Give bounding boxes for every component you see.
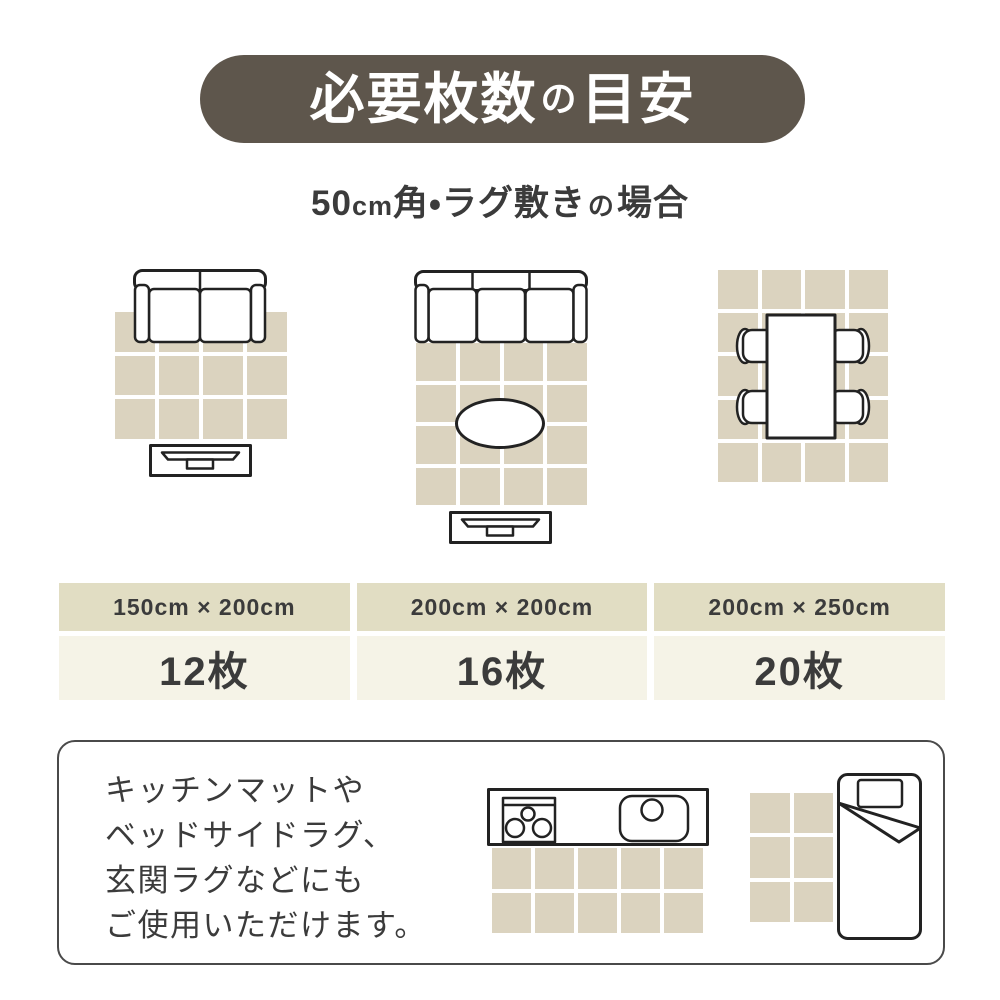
rug-tile (115, 399, 155, 439)
subtitle-particle: の (586, 191, 617, 221)
note-line: ベッドサイドラグ、 (105, 813, 427, 858)
subtitle-unit: cm (352, 191, 393, 221)
subtitle-kanji: 角・ラグ敷き (393, 184, 586, 223)
rug-tile (416, 426, 456, 464)
title-text-main: 必要枚数 (309, 72, 537, 127)
rug-tile (547, 426, 587, 464)
rug-tile (621, 848, 660, 889)
rug-tile (247, 356, 287, 396)
title-banner: 必要枚数の目安 (200, 55, 805, 143)
bedside-rug-grid (750, 793, 833, 922)
rug-tile (203, 399, 243, 439)
rug-tile (547, 343, 587, 381)
rug-tile (578, 893, 617, 934)
rug-tile (416, 468, 456, 506)
rug-tile (718, 270, 758, 309)
tv-board-icon (449, 511, 552, 544)
title-text-particle: の (537, 81, 581, 117)
rug-tile (805, 270, 845, 309)
rug-tile (664, 893, 703, 934)
rug-tile (203, 356, 243, 396)
rug-tile (750, 837, 790, 877)
tile-count-cell: 12枚 (59, 636, 350, 700)
note-line: 玄関ラグなどにも (105, 858, 427, 903)
rug-tile (492, 893, 531, 934)
rug-tile (547, 468, 587, 506)
rug-tile (794, 837, 834, 877)
oval-low-table-icon (455, 398, 545, 449)
rug-tile (621, 893, 660, 934)
rug-tile (794, 793, 834, 833)
tv-board-icon (149, 444, 252, 477)
rug-tile (750, 793, 790, 833)
rug-tile (115, 356, 155, 396)
rug-tile (535, 848, 574, 889)
size-count-table: 150cm × 200cm 200cm × 200cm 200cm × 250c… (59, 583, 945, 700)
title-text-tail: 目安 (582, 72, 696, 127)
note-line: ご使用いただけます。 (105, 903, 427, 948)
rug-tile (460, 468, 500, 506)
rug-tile (547, 385, 587, 423)
rug-tile (159, 356, 199, 396)
bed-icon (837, 773, 922, 940)
sofa-2seat-icon (133, 269, 267, 344)
size-header-cell: 200cm × 200cm (357, 583, 648, 631)
dining-table-chairs-icon (730, 310, 876, 445)
rug-tile (460, 343, 500, 381)
rug-tile (805, 443, 845, 482)
rug-tile (504, 468, 544, 506)
rug-tile (535, 893, 574, 934)
rug-tile (750, 882, 790, 922)
sofa-3seat-icon (414, 270, 588, 344)
rug-tile (159, 399, 199, 439)
tile-count-cell: 20枚 (654, 636, 945, 700)
note-line: キッチンマットや (105, 768, 427, 813)
subtitle-number: 50 (311, 184, 352, 223)
rug-tile (416, 343, 456, 381)
rug-tile (578, 848, 617, 889)
rug-tile (762, 443, 802, 482)
rug-quantity-infographic: 必要枚数の目安 50cm角・ラグ敷きの場合 (0, 0, 1000, 1000)
rug-tile (849, 443, 889, 482)
usage-note-text: キッチンマットや ベッドサイドラグ、 玄関ラグなどにも ご使用いただけます。 (105, 768, 427, 948)
rug-tile (849, 270, 889, 309)
rug-tile (762, 270, 802, 309)
rug-tile (504, 343, 544, 381)
rug-tile (247, 399, 287, 439)
tile-count-cell: 16枚 (357, 636, 648, 700)
rug-tile (718, 443, 758, 482)
size-header-cell: 150cm × 200cm (59, 583, 350, 631)
rug-tile (664, 848, 703, 889)
rug-tile (492, 848, 531, 889)
size-header-cell: 200cm × 250cm (654, 583, 945, 631)
rug-tile (794, 882, 834, 922)
kitchen-mat-grid (492, 848, 703, 933)
subtitle: 50cm角・ラグ敷きの場合 (0, 186, 1000, 221)
subtitle-tail: 場合 (617, 184, 689, 223)
kitchen-counter-icon (487, 788, 709, 846)
rug-tile (416, 385, 456, 423)
